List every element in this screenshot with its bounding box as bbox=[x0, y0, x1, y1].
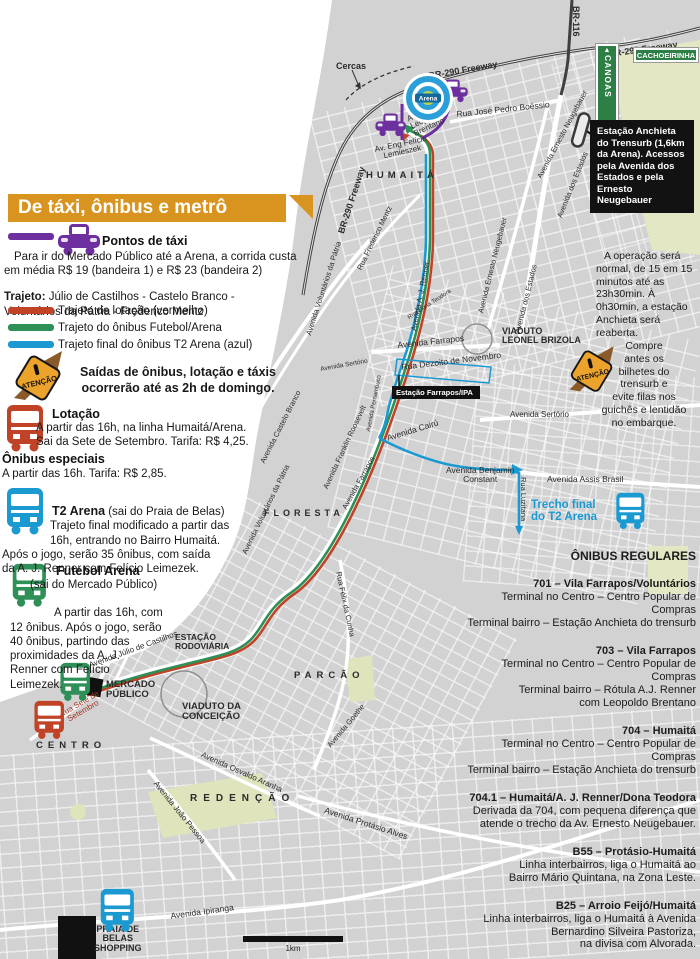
bus-route-item: 703 – Vila FarraposTerminal no Centro – … bbox=[410, 645, 696, 710]
compre-text: Compre antes os bilhetes do trensurb e e… bbox=[588, 340, 700, 430]
bus-route-detail: Terminal bairro – Rótula A.J. Renner bbox=[410, 684, 696, 697]
lotacao-title: Lotação bbox=[52, 407, 100, 421]
bus-route-name: 701 – Vila Farrapos/Voluntários bbox=[410, 578, 696, 591]
anchieta-info-box: Estação Anchieta do Trensurb (1,6km da A… bbox=[590, 120, 694, 213]
lotacao-body: A partir das 16h, na linha Humaitá/Arena… bbox=[36, 421, 300, 450]
bus-route-detail: Terminal bairro – Estação Anchieta do tr… bbox=[410, 764, 696, 777]
taxi-section-title: Pontos de táxi bbox=[102, 234, 187, 248]
futebol-route-label: Trajeto do ônibus Futebol/Arena bbox=[58, 321, 222, 335]
futebol-arena-title: Futebol Arena bbox=[56, 564, 140, 578]
taxi-trajeto-label: Trajeto: bbox=[4, 291, 46, 303]
lotacao-route-label: Trajeto de lotação (vermelho) bbox=[58, 304, 208, 318]
estacao-farrapos-label: Estação Farrapos/IPA bbox=[392, 386, 480, 399]
taxi-section-body: Para ir do Mercado Público até a Arena, … bbox=[4, 250, 300, 279]
bus-route-detail: Compras bbox=[410, 751, 696, 764]
futebol-body-spacer bbox=[10, 606, 54, 619]
transit-map-infographic: BR-290 FreewayBR-290 FreewayBR-290 Freew… bbox=[0, 0, 700, 959]
onibus-regulares-title: ÔNIBUS REGULARES bbox=[410, 549, 696, 563]
futebol-route-swatch bbox=[8, 324, 54, 331]
bus-route-detail: Terminal no Centro – Centro Popular de bbox=[410, 738, 696, 751]
futebol-arena-subtitle: (sai do Mercado Público) bbox=[30, 578, 157, 592]
onibus-especiais-title: Ônibus especiais bbox=[2, 452, 105, 466]
bus-route-detail: Bairro Mário Quintana, na Zona Leste. bbox=[410, 872, 696, 885]
bus-route-name: 703 – Vila Farrapos bbox=[410, 645, 696, 658]
bus-route-detail: Terminal no Centro – Centro Popular de bbox=[410, 658, 696, 671]
bus-route-detail: Terminal no Centro – Centro Popular de bbox=[410, 591, 696, 604]
arena-stadium-icon: Arena bbox=[402, 72, 454, 129]
bus-route-item: B25 – Arroio Feijó/HumaitáLinha interbai… bbox=[410, 900, 696, 952]
t2-route-swatch bbox=[8, 341, 54, 348]
legend-title: De táxi, ônibus e metrô bbox=[18, 197, 227, 218]
scale-label: 1km bbox=[263, 944, 323, 953]
futebol-arena-body: A partir das 16h, com 12 ônibus. Após o … bbox=[10, 592, 234, 692]
bus-route-name: 704 – Humaitá bbox=[410, 725, 696, 738]
header-fold-icon bbox=[288, 194, 314, 220]
svg-text:Arena: Arena bbox=[419, 96, 438, 103]
bus-route-detail: Compras bbox=[410, 604, 696, 617]
bus-icon-t2-map bbox=[614, 492, 647, 533]
bus-route-item: 704 – HumaitáTerminal no Centro – Centro… bbox=[410, 725, 696, 777]
bus-route-name: B25 – Arroio Feijó/Humaitá bbox=[410, 900, 696, 913]
arrow-up-icon: ▲ bbox=[598, 46, 616, 55]
taxi-route-swatch bbox=[8, 233, 54, 240]
onibus-especiais-body: A partir das 16h. Tarifa: R$ 2,85. bbox=[2, 467, 292, 481]
operacao-text: A operação será normal, de 15 em 15 minu… bbox=[596, 250, 698, 340]
bus-route-item: B55 – Protásio-HumaitáLinha interbairros… bbox=[410, 846, 696, 885]
bus-route-detail: atende o trecho da Av. Ernesto Neugebaue… bbox=[410, 818, 696, 831]
bus-icon-lotacao-map bbox=[32, 700, 66, 743]
canoas-sign: ▲ CANOAS bbox=[596, 44, 618, 122]
bus-route-name: B55 – Protásio-Humaitá bbox=[410, 846, 696, 859]
bus-route-detail: na divisa com Alvorada. bbox=[410, 938, 696, 951]
warning-text: Saídas de ônibus, lotação e táxis ocorre… bbox=[64, 364, 292, 397]
bus-route-detail: Linha interbairros, liga o Humaitá à Ave… bbox=[410, 913, 696, 926]
bus-icon-praia-map bbox=[98, 888, 137, 937]
futebol-body-text: A partir das 16h, com 12 ônibus. Após o … bbox=[10, 607, 163, 690]
lotacao-route-swatch bbox=[8, 307, 54, 314]
bus-route-detail: Derivada da 704, com pequena diferença q… bbox=[410, 805, 696, 818]
legend-title-bar: De táxi, ônibus e metrô bbox=[8, 194, 286, 222]
cachoeirinha-sign: CACHOEIRINHA bbox=[634, 48, 698, 62]
t2-arena-body: Trajeto final modificado a partir das 16… bbox=[2, 505, 300, 576]
bus-route-detail: Bernardino Silveira Pastoriza, bbox=[410, 926, 696, 939]
onibus-regulares-panel: ÔNIBUS REGULARES 701 – Vila Farrapos/Vol… bbox=[410, 549, 696, 951]
t2-body-spacer bbox=[2, 519, 50, 546]
trensurb-station-icon bbox=[570, 110, 592, 157]
bus-route-detail: com Leopoldo Brentano bbox=[410, 697, 696, 710]
bus-route-item: 704.1 – Humaitá/A. J. Renner/Dona Teodor… bbox=[410, 792, 696, 831]
t2-route-label: Trajeto final do ônibus T2 Arena (azul) bbox=[58, 338, 252, 352]
canoas-sign-label: CANOAS bbox=[601, 55, 613, 98]
bus-route-name: 704.1 – Humaitá/A. J. Renner/Dona Teodor… bbox=[410, 792, 696, 805]
bus-route-item: 701 – Vila Farrapos/VoluntáriosTerminal … bbox=[410, 578, 696, 630]
bus-route-detail: Linha interbairros, liga o Humaitá ao bbox=[410, 859, 696, 872]
bus-route-detail: Compras bbox=[410, 671, 696, 684]
bus-route-detail: Terminal bairro – Estação Anchieta do tr… bbox=[410, 617, 696, 630]
